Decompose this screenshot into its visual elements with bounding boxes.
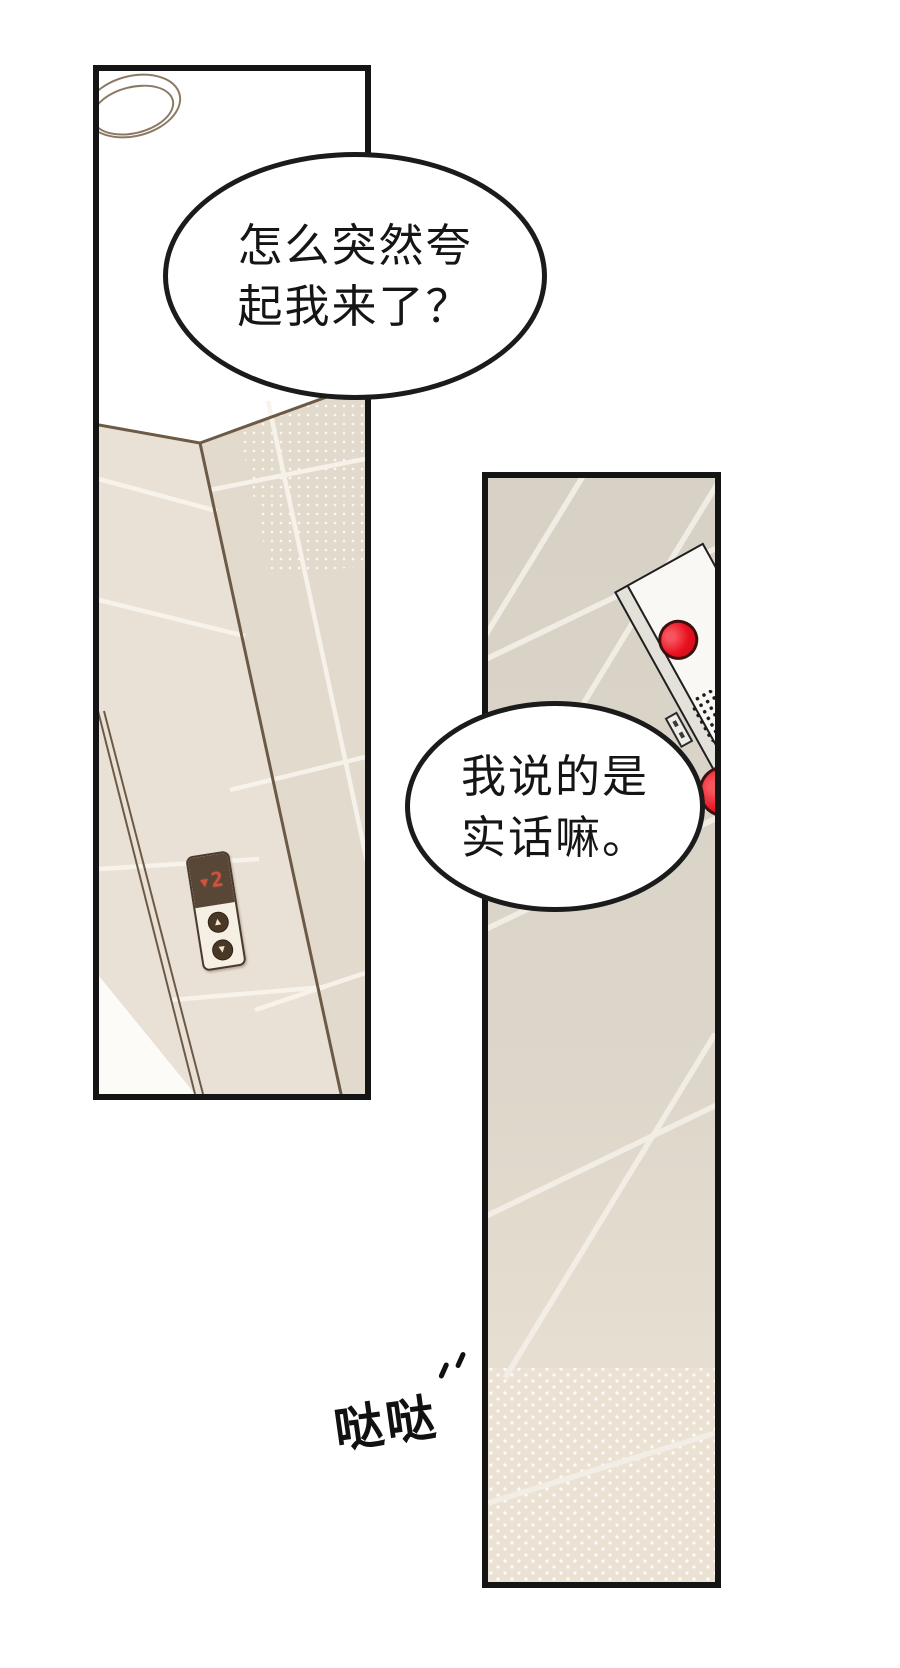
- sfx-tick-mark: [438, 1362, 449, 1380]
- up-arrow-icon: ▲: [214, 917, 221, 926]
- comic-page: ▾2 ▲ ▼: [0, 0, 900, 1668]
- elevator-up-button: ▲: [206, 910, 230, 934]
- floor-indicator-display: ▾2: [187, 853, 234, 909]
- sfx-tick-mark: [455, 1351, 466, 1369]
- speech-bubble-1: 怎么突然夸 起我来了？: [163, 152, 547, 400]
- panel-hall-wall: [482, 472, 721, 1588]
- speech-bubble-1-text: 怎么突然夸 起我来了？: [237, 215, 472, 337]
- speech-line: 起我来了？: [237, 276, 472, 337]
- elevator-down-button: ▼: [210, 938, 234, 962]
- speech-line: 我说的是: [461, 746, 649, 807]
- floor-indicator-value: ▾2: [196, 866, 226, 894]
- speech-bubble-2: 我说的是 实话嘛。: [405, 701, 705, 912]
- sfx-footsteps: 哒哒: [313, 1351, 494, 1464]
- label-mark: [672, 720, 678, 727]
- speech-bubble-2-text: 我说的是 实话嘛。: [461, 746, 649, 868]
- speech-line: 实话嘛。: [461, 807, 649, 868]
- call-button-plate: ▲ ▼: [195, 902, 244, 969]
- sfx-text: 哒哒: [329, 1378, 442, 1463]
- down-arrow-icon: ▼: [218, 945, 225, 954]
- label-mark: [679, 731, 685, 738]
- speech-line: 怎么突然夸: [237, 215, 472, 276]
